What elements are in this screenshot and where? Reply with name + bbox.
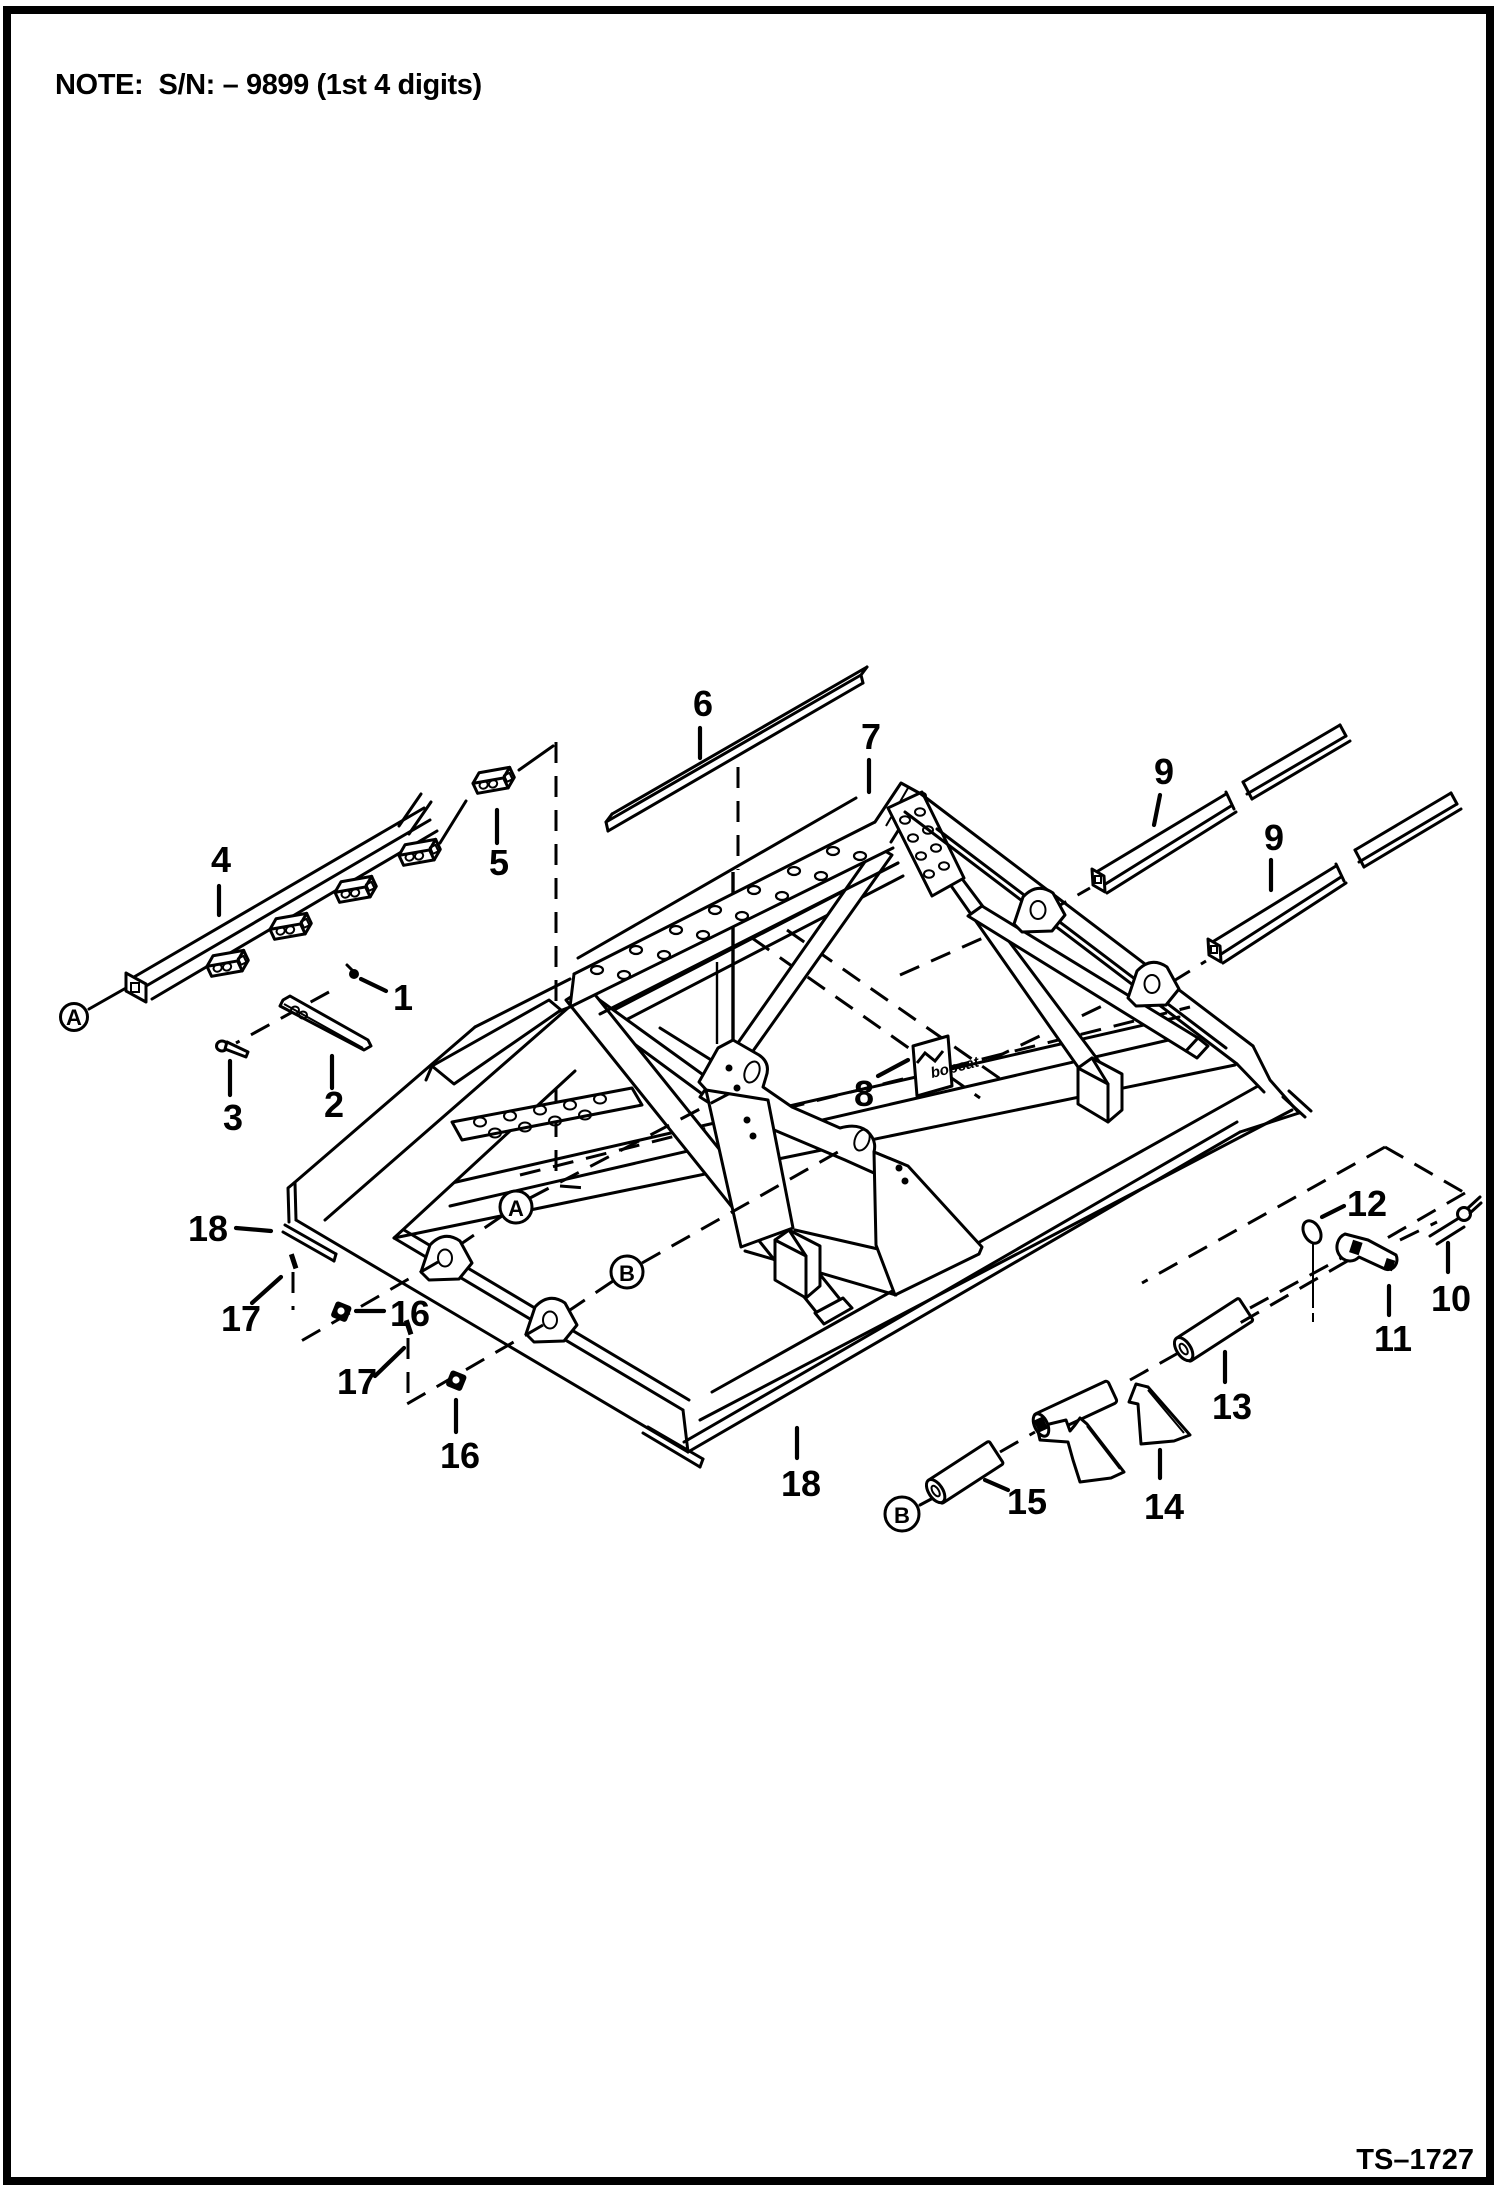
- svg-text:18: 18: [188, 1208, 228, 1249]
- svg-text:14: 14: [1144, 1486, 1184, 1527]
- svg-text:B: B: [894, 1503, 910, 1528]
- svg-text:12: 12: [1347, 1183, 1387, 1224]
- svg-text:9: 9: [1264, 817, 1284, 858]
- svg-text:10: 10: [1431, 1278, 1471, 1319]
- svg-text:NOTE: S/N: – 9899 (1st 4 digi: NOTE: S/N: – 9899 (1st 4 digits): [55, 69, 482, 101]
- svg-text:18: 18: [781, 1463, 821, 1504]
- svg-text:A: A: [66, 1005, 82, 1030]
- svg-text:5: 5: [489, 842, 509, 883]
- svg-text:6: 6: [693, 683, 713, 724]
- svg-text:TS–1727: TS–1727: [1356, 2144, 1474, 2176]
- svg-text:A: A: [508, 1196, 524, 1221]
- svg-text:11: 11: [1374, 1318, 1412, 1359]
- svg-text:2: 2: [324, 1084, 344, 1125]
- svg-text:4: 4: [211, 839, 231, 880]
- svg-text:13: 13: [1212, 1386, 1252, 1427]
- svg-text:7: 7: [861, 716, 881, 757]
- svg-text:15: 15: [1007, 1481, 1047, 1522]
- svg-text:B: B: [619, 1261, 635, 1286]
- svg-text:8: 8: [854, 1073, 874, 1114]
- svg-text:9: 9: [1154, 751, 1174, 792]
- svg-text:17: 17: [221, 1298, 261, 1339]
- svg-text:16: 16: [440, 1435, 480, 1476]
- svg-text:1: 1: [393, 977, 413, 1018]
- svg-text:17: 17: [337, 1361, 377, 1402]
- svg-text:3: 3: [223, 1097, 243, 1138]
